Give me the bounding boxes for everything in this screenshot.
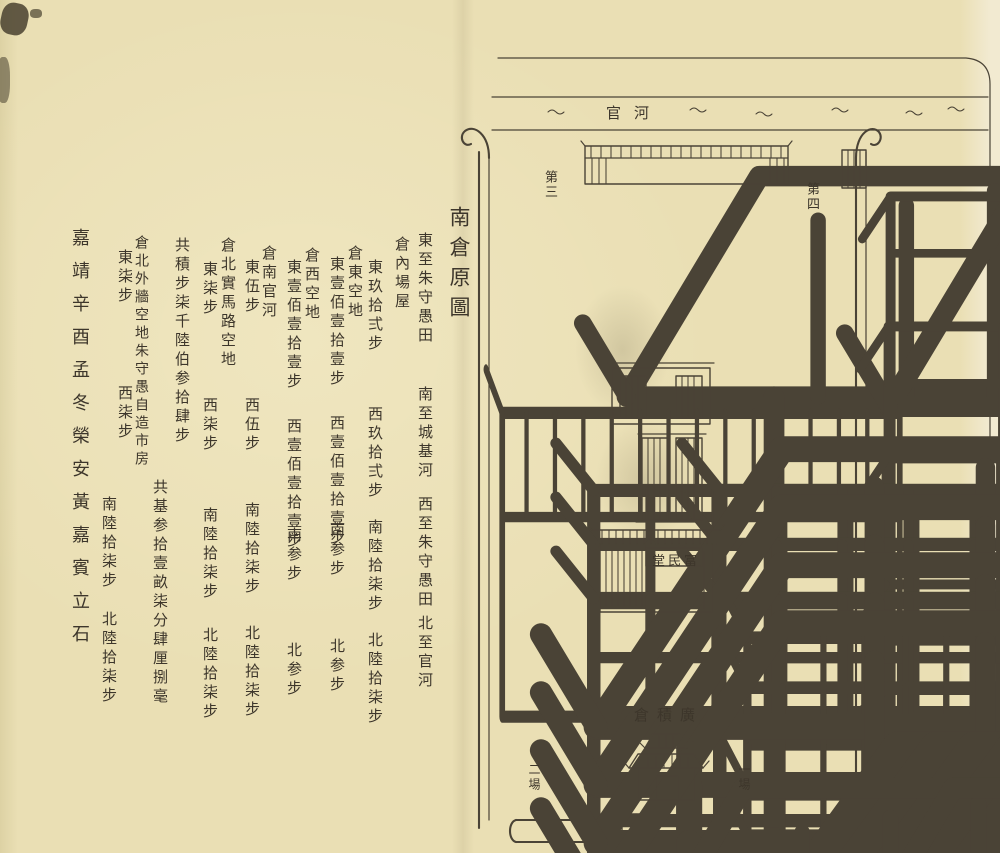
measure: 北参步	[286, 642, 301, 699]
section-header: 倉東空地	[347, 245, 362, 321]
section-header: 倉南官河	[261, 245, 276, 321]
section-header: 倉北實馬路空地	[220, 237, 235, 370]
yard-two-label: 二場	[528, 763, 540, 793]
measure: 西伍步	[244, 397, 259, 454]
total-area: 共基参拾壹畝柒分肆厘捌毫	[152, 479, 167, 707]
measure: 南陸拾柒步	[367, 519, 382, 614]
boundary-north: 北至官河	[417, 615, 432, 691]
boundary-south: 南至城基河	[417, 386, 432, 481]
section-header: 倉北外牆空地朱守愚自造市房	[134, 235, 148, 469]
measure: 東柒步	[202, 261, 217, 318]
granary-map-drawing	[0, 0, 1000, 853]
gate-third-label: 第三	[543, 170, 556, 200]
river-label: 官河	[606, 102, 662, 123]
section-header: 倉西空地	[304, 247, 319, 323]
measure: 南参步	[329, 522, 344, 579]
measure: 南陸拾柒步	[202, 507, 217, 602]
measure: 南参步	[286, 527, 301, 584]
measure: 東玖拾弍步	[367, 259, 382, 354]
measure: 北参步	[329, 638, 344, 695]
measure: 東壹佰壹拾壹步	[329, 256, 344, 389]
measure: 北陸拾柒步	[367, 632, 382, 727]
measure: 東壹佰壹拾壹步	[286, 259, 301, 392]
section-header: 倉內場屋	[394, 236, 409, 312]
total-steps: 共積步柒千陸伯参拾肆步	[174, 237, 189, 446]
measure: 西柒步	[117, 385, 132, 442]
page-title: 南倉原圖	[448, 206, 469, 326]
boundary-west: 西至朱守愚田	[417, 496, 432, 610]
measure: 東伍步	[244, 259, 259, 316]
boundary-east: 東至朱守愚田	[417, 232, 432, 346]
hall-plaque-label: 堂民富	[652, 550, 700, 569]
book-page-scan: 官河 第三 第四 堂民富 倉積廣 二場 一場 南倉原圖 東至朱守愚田 南至城基河…	[0, 0, 1000, 853]
yard-one-label: 一場	[738, 763, 750, 793]
measure: 北陸拾柒步	[101, 611, 116, 706]
river-guanhe	[492, 97, 988, 130]
colophon: 嘉靖辛酉孟冬榮安黃嘉賓立石	[70, 228, 88, 657]
measure: 北陸拾柒步	[244, 625, 259, 720]
measure: 北陸拾柒步	[202, 627, 217, 722]
gate-fourth-label: 第四	[805, 182, 818, 212]
measure: 西玖拾弍步	[367, 406, 382, 501]
measure: 南陸拾柒步	[101, 496, 116, 591]
granary-name-label: 倉積廣	[634, 704, 703, 725]
measure: 南陸拾柒步	[244, 502, 259, 597]
measure: 西柒步	[202, 397, 217, 454]
measure: 東柒步	[117, 249, 132, 306]
